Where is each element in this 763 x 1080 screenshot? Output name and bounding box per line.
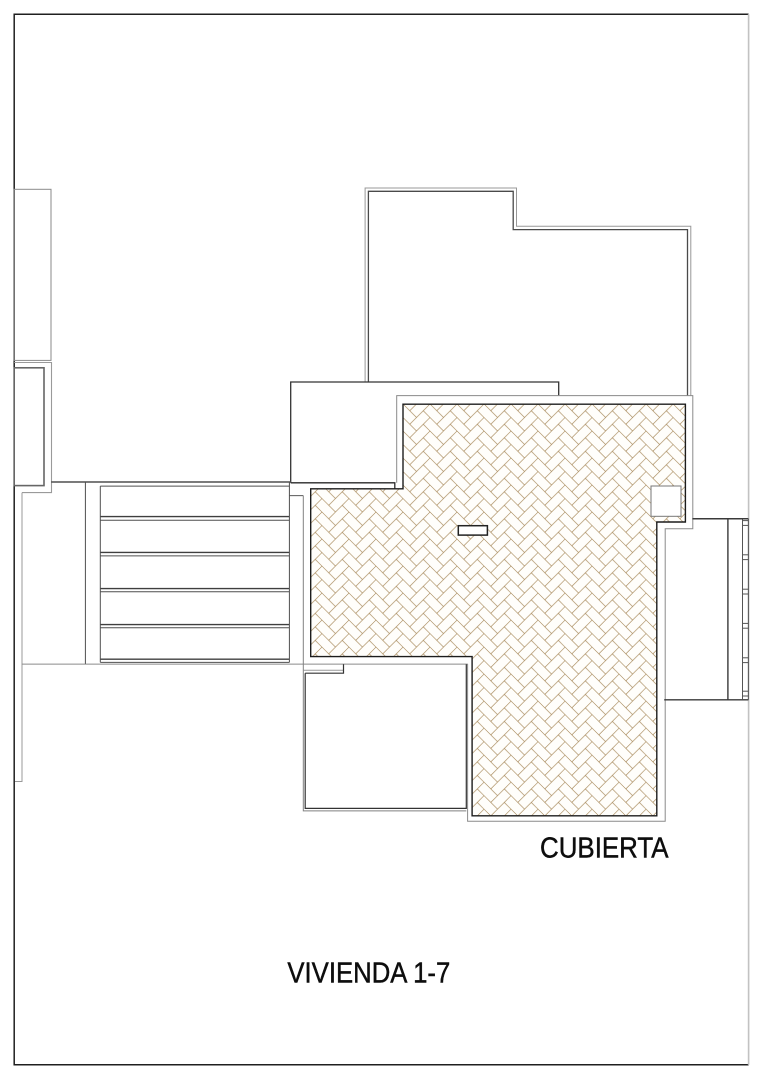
svg-text:VIVIENDA 1-7: VIVIENDA 1-7	[287, 958, 450, 990]
svg-text:CUBIERTA: CUBIERTA	[540, 833, 669, 865]
